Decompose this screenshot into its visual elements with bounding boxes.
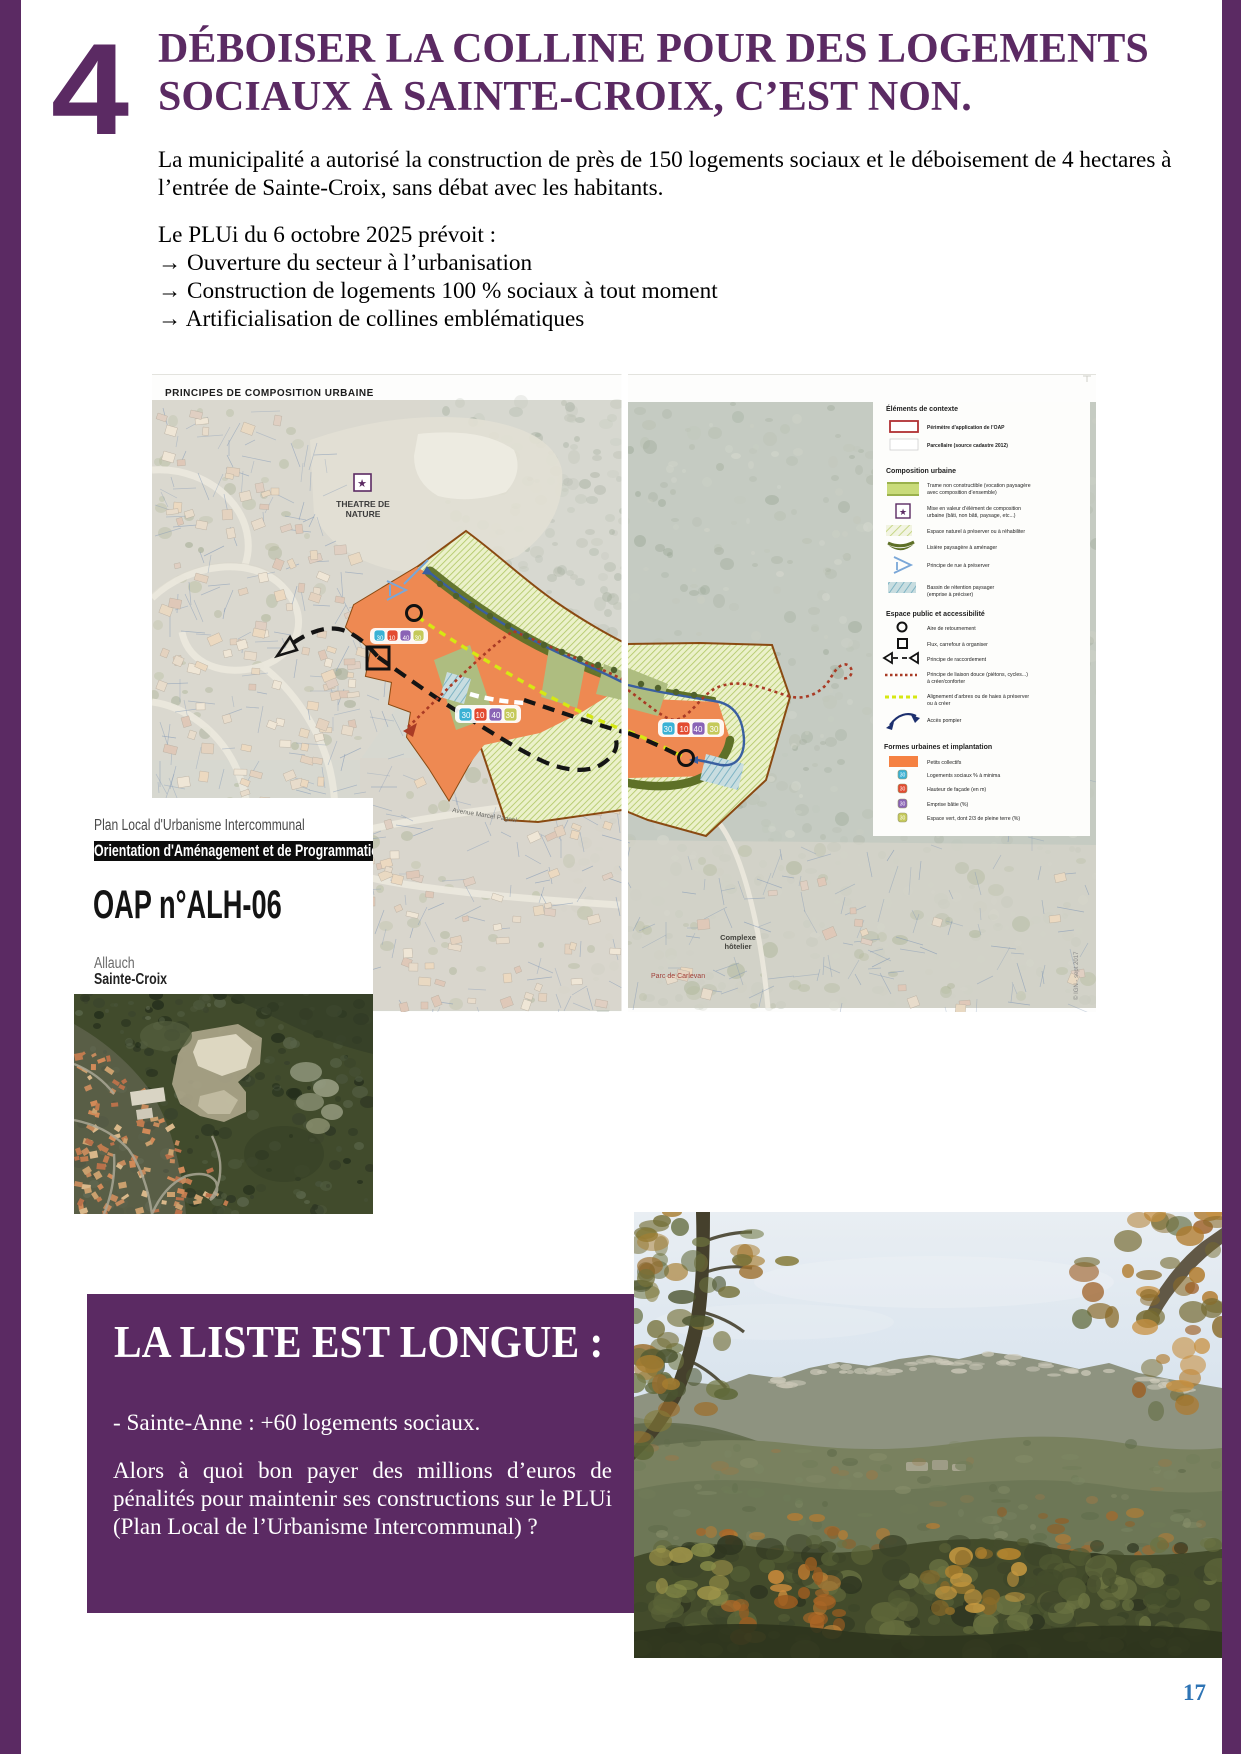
svg-text:40: 40 [694, 725, 703, 734]
svg-text:Complexe: Complexe [720, 933, 756, 942]
svg-text:urbaine (bâti, non bâti, paysa: urbaine (bâti, non bâti, paysage, etc...… [927, 513, 1016, 519]
svg-text:Éléments de contexte: Éléments de contexte [886, 404, 958, 413]
svg-text:PRINCIPES DE COMPOSITION URBAI: PRINCIPES DE COMPOSITION URBAINE [165, 388, 374, 399]
svg-text:30: 30 [415, 636, 422, 642]
svg-text:Périmètre d’application de l’O: Périmètre d’application de l’OAP [927, 425, 1005, 431]
svg-text:30: 30 [506, 711, 515, 720]
svg-text:Accès pompier: Accès pompier [927, 718, 962, 724]
svg-text:40: 40 [403, 636, 410, 642]
svg-text:Bassin de rétention paysager: Bassin de rétention paysager [927, 585, 994, 591]
svg-text:Parc de Carlevan: Parc de Carlevan [651, 973, 705, 980]
svg-text:THEATRE DE: THEATRE DE [336, 499, 390, 509]
svg-text:Mise en valeur d’élément de co: Mise en valeur d’élément de composition [927, 506, 1021, 512]
svg-text:Trame non constructible (vocat: Trame non constructible (vocation paysag… [927, 483, 1031, 489]
svg-text:★: ★ [899, 507, 907, 517]
svg-text:Emprise bâtie (%): Emprise bâtie (%) [927, 802, 968, 808]
svg-text:Lisière paysagère à aménager: Lisière paysagère à aménager [927, 545, 997, 551]
svg-text:Formes urbaines et implantatio: Formes urbaines et implantation [884, 744, 992, 751]
svg-text:NATURE: NATURE [346, 509, 381, 519]
svg-text:30: 30 [900, 802, 906, 808]
svg-text:30: 30 [710, 725, 719, 734]
svg-text:(emprise à préciser): (emprise à préciser) [927, 592, 973, 598]
svg-text:Espace naturel à préserver ou: Espace naturel à préserver ou à réhabili… [927, 529, 1025, 535]
svg-text:40: 40 [492, 711, 501, 720]
svg-text:Principe de raccordement: Principe de raccordement [927, 657, 987, 663]
svg-text:© IGN - sept 2017: © IGN - sept 2017 [1073, 951, 1080, 1000]
svg-text:Principe de rue à préserver: Principe de rue à préserver [927, 563, 990, 569]
svg-text:30: 30 [900, 787, 906, 793]
svg-text:avec composition d’ensemble): avec composition d’ensemble) [927, 490, 997, 496]
svg-text:Aire de retournement: Aire de retournement [927, 626, 976, 632]
svg-text:ou à créer: ou à créer [927, 701, 951, 707]
svg-text:à créer/conforter: à créer/conforter [927, 679, 965, 685]
svg-text:Alignement d’arbres ou de haie: Alignement d’arbres ou de haies à préser… [927, 694, 1029, 700]
svg-text:★: ★ [357, 478, 367, 490]
svg-text:Composition urbaine: Composition urbaine [886, 468, 956, 475]
svg-text:Espace public et accessibilité: Espace public et accessibilité [886, 611, 985, 618]
svg-text:Parcellaire (source cadastre 2: Parcellaire (source cadastre 2012) [927, 443, 1008, 449]
svg-text:10: 10 [680, 725, 689, 734]
svg-text:Logements sociaux % à minima: Logements sociaux % à minima [927, 773, 1000, 779]
svg-text:Hauteur de façade (en m): Hauteur de façade (en m) [927, 787, 986, 793]
svg-text:Principe de liaison douce (pié: Principe de liaison douce (piétons, cycl… [927, 672, 1028, 678]
svg-text:Flux, carrefour à organiser: Flux, carrefour à organiser [927, 642, 988, 648]
svg-text:30: 30 [900, 816, 906, 822]
svg-text:10: 10 [476, 711, 485, 720]
svg-text:30: 30 [664, 725, 673, 734]
svg-text:30: 30 [377, 636, 384, 642]
svg-text:30: 30 [462, 711, 471, 720]
svg-text:30: 30 [900, 773, 906, 779]
svg-text:Petits collectifs: Petits collectifs [927, 760, 962, 766]
svg-text:10: 10 [389, 636, 396, 642]
svg-text:hôtelier: hôtelier [724, 942, 751, 951]
svg-text:Espace vert, dont 2/3 de plein: Espace vert, dont 2/3 de pleine terre (%… [927, 816, 1020, 822]
